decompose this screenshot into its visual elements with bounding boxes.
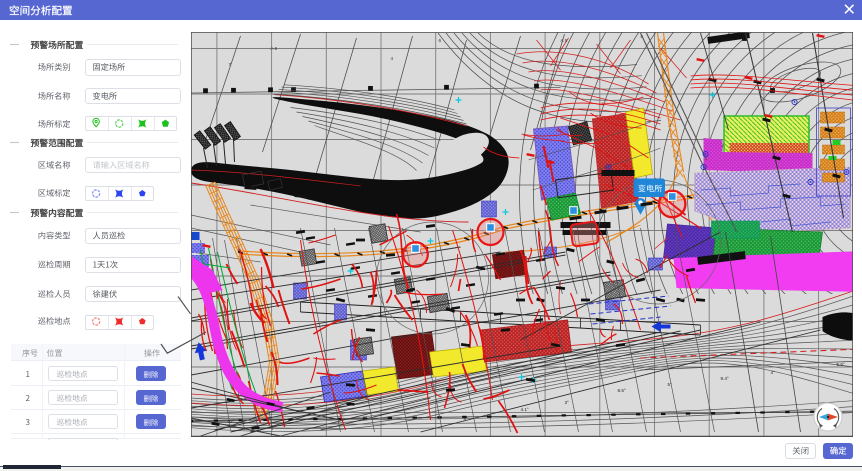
svg-text:7: 7 (228, 62, 231, 67)
svg-text:2°: 2° (340, 412, 345, 417)
svg-text:9.4°: 9.4° (720, 376, 728, 381)
svg-text:8°: 8° (463, 416, 468, 421)
svg-text:5.6°: 5.6° (836, 362, 844, 367)
svg-text:5°: 5° (667, 382, 672, 387)
svg-text:4°: 4° (770, 370, 775, 375)
svg-text:A 5: A 5 (560, 38, 567, 43)
svg-text:A 6: A 6 (270, 46, 277, 51)
svg-text:4.1°: 4.1° (520, 407, 528, 412)
svg-text:8.5°: 8.5° (617, 388, 625, 393)
svg-text:4: 4 (390, 56, 393, 61)
svg-text:92°: 92° (227, 419, 234, 424)
svg-text:3°: 3° (564, 400, 569, 405)
svg-text:6: 6 (438, 38, 441, 43)
